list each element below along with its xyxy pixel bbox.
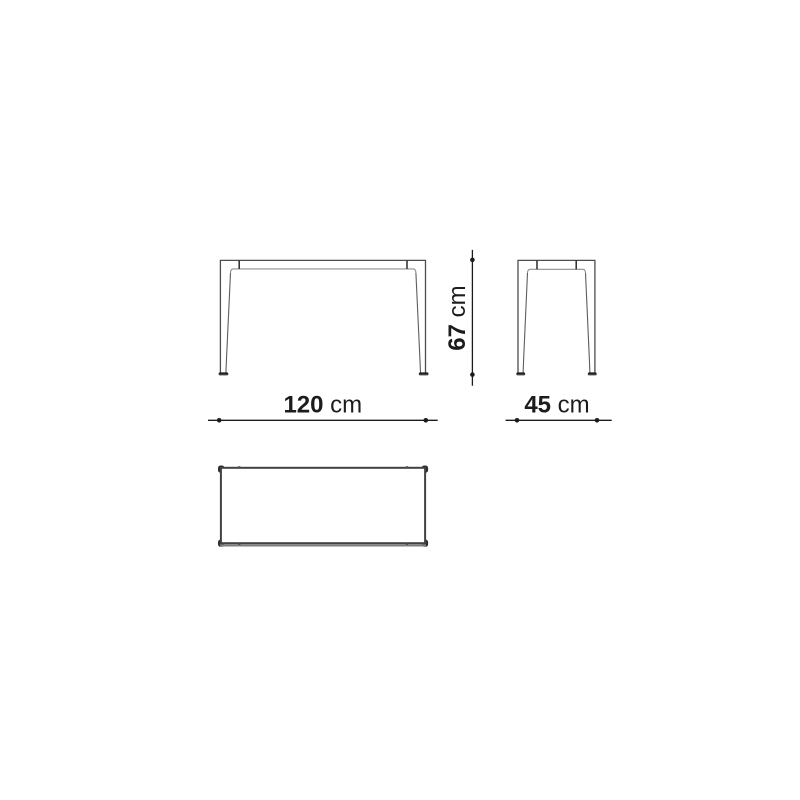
svg-text:67 cm: 67 cm — [444, 285, 471, 350]
svg-text:45 cm: 45 cm — [524, 391, 589, 418]
svg-text:120 cm: 120 cm — [283, 391, 362, 418]
